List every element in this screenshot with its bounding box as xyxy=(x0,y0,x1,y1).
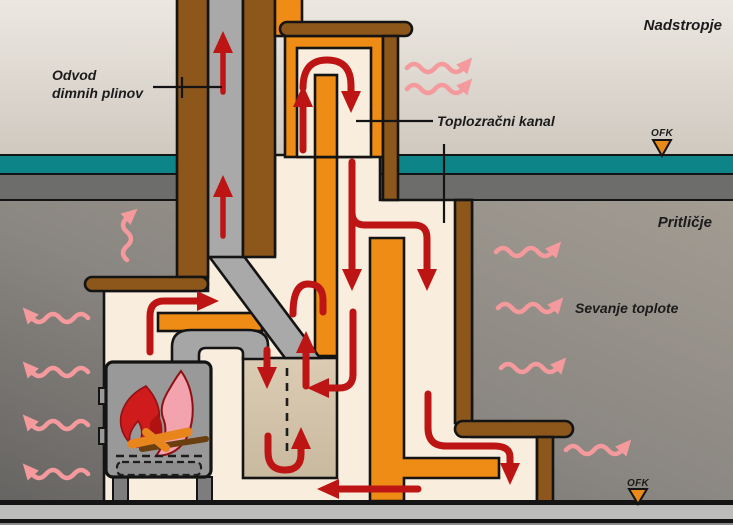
diagram-canvas: OFK OFK Odvod dimnih plinov Toplozračni … xyxy=(0,0,733,525)
wood-bench-leg xyxy=(537,437,553,503)
stove-ash-pan xyxy=(117,462,201,475)
warm-air-channel-label: Toplozračni kanal xyxy=(437,113,556,129)
upper-box-divider xyxy=(315,75,337,157)
floor-line-top xyxy=(0,500,733,505)
chimney-wall-right xyxy=(243,0,275,257)
wood-mantel-left xyxy=(85,277,208,291)
wood-bench-top xyxy=(455,421,573,437)
ground-floor-line xyxy=(0,500,733,525)
floor-strip xyxy=(0,505,733,519)
masonry-band xyxy=(158,313,262,331)
stove-leg-right xyxy=(197,477,212,504)
flue-gas-label-line2: dimnih plinov xyxy=(52,85,144,101)
chimney-wall-left xyxy=(177,0,208,277)
wood-shelf-top xyxy=(280,22,412,36)
ofk-label: OFK xyxy=(627,478,649,489)
wood-wall-right xyxy=(455,200,472,423)
bypass-chamber xyxy=(243,358,337,478)
wood-post xyxy=(383,36,398,200)
upper-floor-label: Nadstropje xyxy=(644,17,722,34)
flue-gas-label-line1: Odvod xyxy=(52,67,97,83)
slab-concrete-left xyxy=(0,172,177,200)
slab-concrete-right xyxy=(379,172,733,200)
floor-line-bottom xyxy=(0,519,733,523)
slab-teal-right xyxy=(379,155,733,174)
stove-leg-left xyxy=(113,477,128,504)
heat-radiation-label: Sevanje toplote xyxy=(575,300,679,316)
heater-diagram: OFK OFK Odvod dimnih plinov Toplozračni … xyxy=(0,0,733,525)
slab-teal-left xyxy=(0,155,177,174)
ofk-label: OFK xyxy=(651,128,673,139)
chimney xyxy=(177,0,275,277)
ground-floor-label: Pritličje xyxy=(658,214,712,231)
